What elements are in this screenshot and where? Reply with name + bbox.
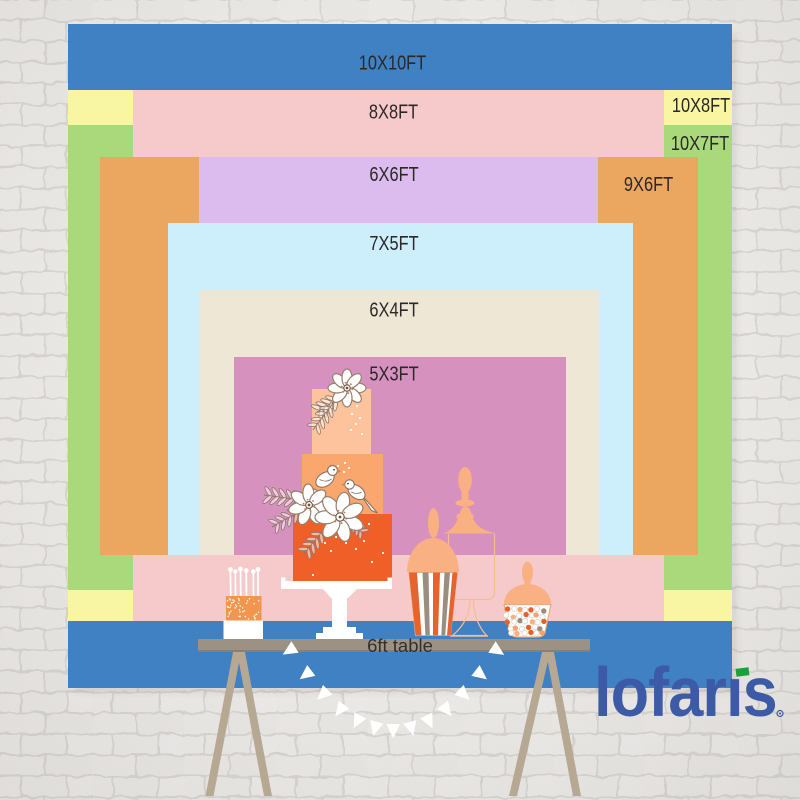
svg-text:6X6FT: 6X6FT [369,162,418,185]
svg-text:10X7FT: 10X7FT [671,131,729,154]
svg-text:5X3FT: 5X3FT [369,362,418,385]
svg-text:9X6FT: 9X6FT [624,172,673,195]
svg-text:lofarıs: lofarıs [594,654,777,732]
svg-text:6ft table: 6ft table [367,635,433,656]
svg-text:10X8FT: 10X8FT [672,93,730,116]
svg-text:6X4FT: 6X4FT [369,298,418,321]
svg-text:10X10FT: 10X10FT [359,51,426,74]
svg-text:7X5FT: 7X5FT [369,231,418,254]
svg-text:8X8FT: 8X8FT [369,100,418,123]
